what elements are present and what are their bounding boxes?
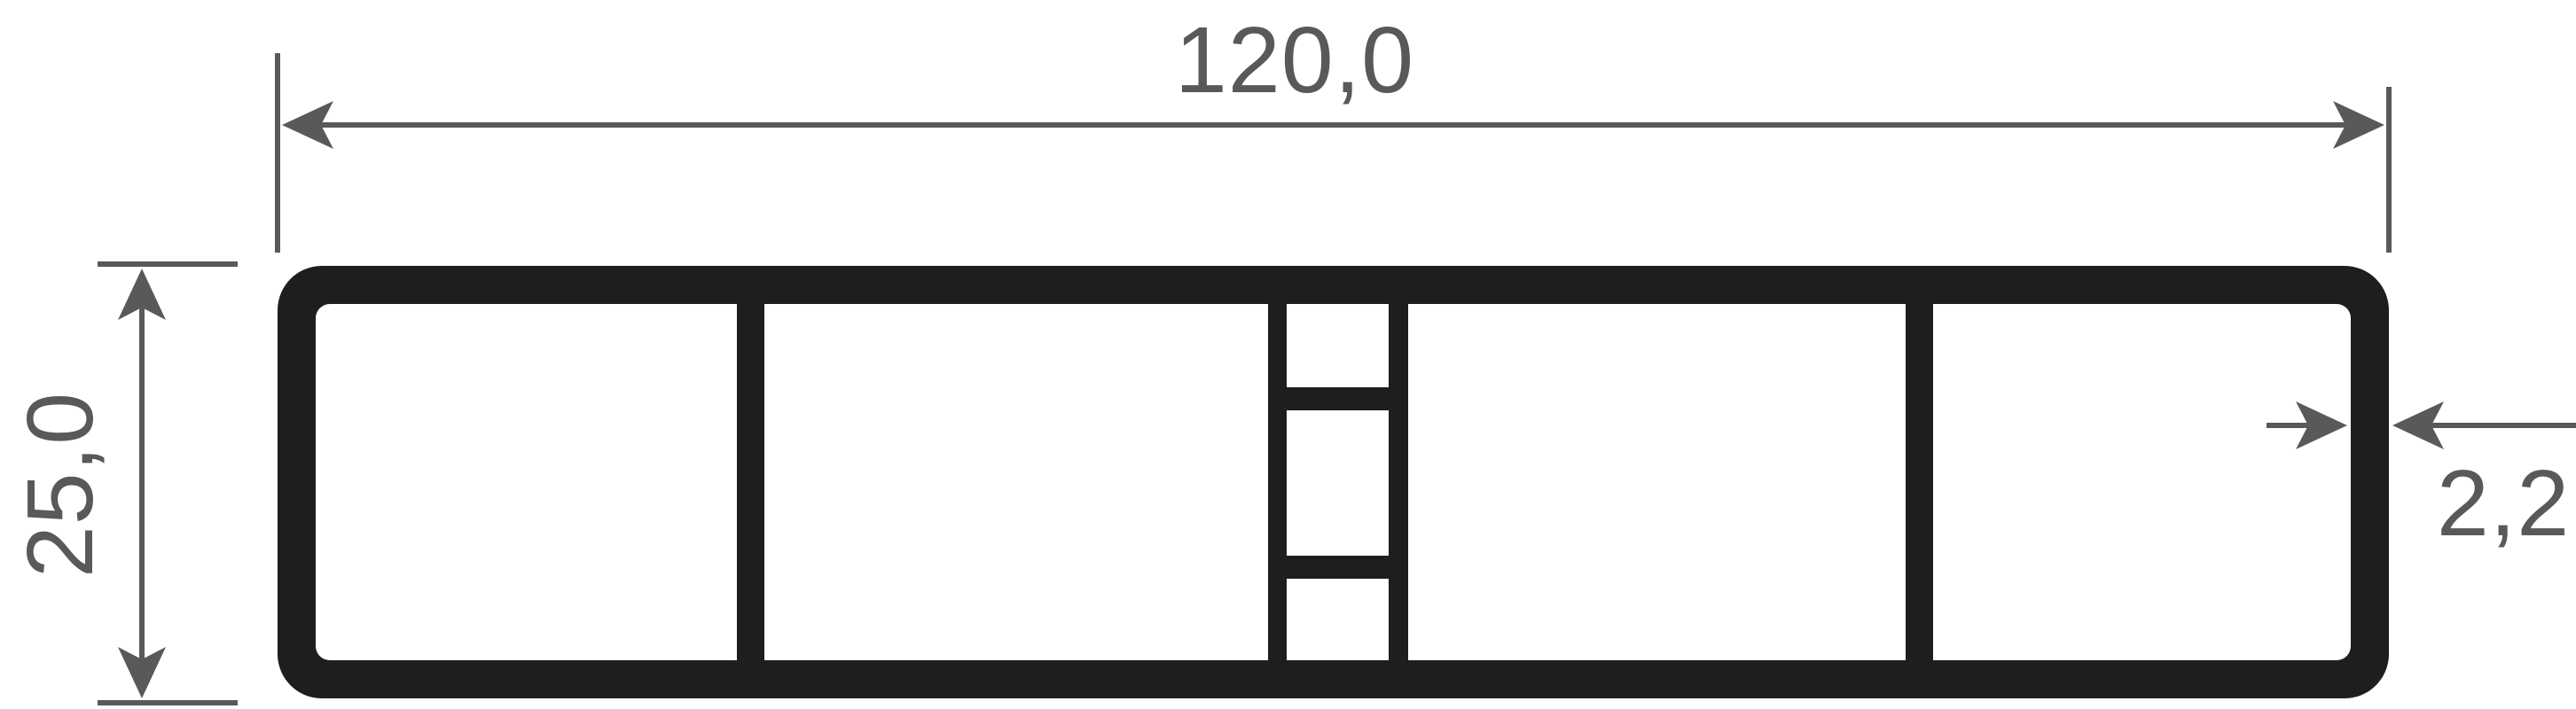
profile-web-center-right bbox=[1389, 304, 1408, 660]
profile-rung-lower bbox=[1268, 556, 1408, 579]
profile-rung-upper bbox=[1268, 387, 1408, 410]
profile-web-center-left bbox=[1268, 304, 1287, 660]
profile-shape-group bbox=[278, 266, 2389, 698]
technical-drawing-canvas: 120,0 25,0 2,2 bbox=[0, 0, 2576, 709]
width-dimension-label: 120,0 bbox=[1029, 11, 1561, 110]
height-dimension-label: 25,0 bbox=[11, 343, 110, 627]
profile-outline bbox=[278, 266, 2389, 698]
dimension-lines-group bbox=[98, 53, 2576, 703]
profile-web-right bbox=[1906, 304, 1933, 660]
profile-web-left bbox=[737, 304, 764, 660]
wall-thickness-dimension-label: 2,2 bbox=[2397, 454, 2576, 553]
